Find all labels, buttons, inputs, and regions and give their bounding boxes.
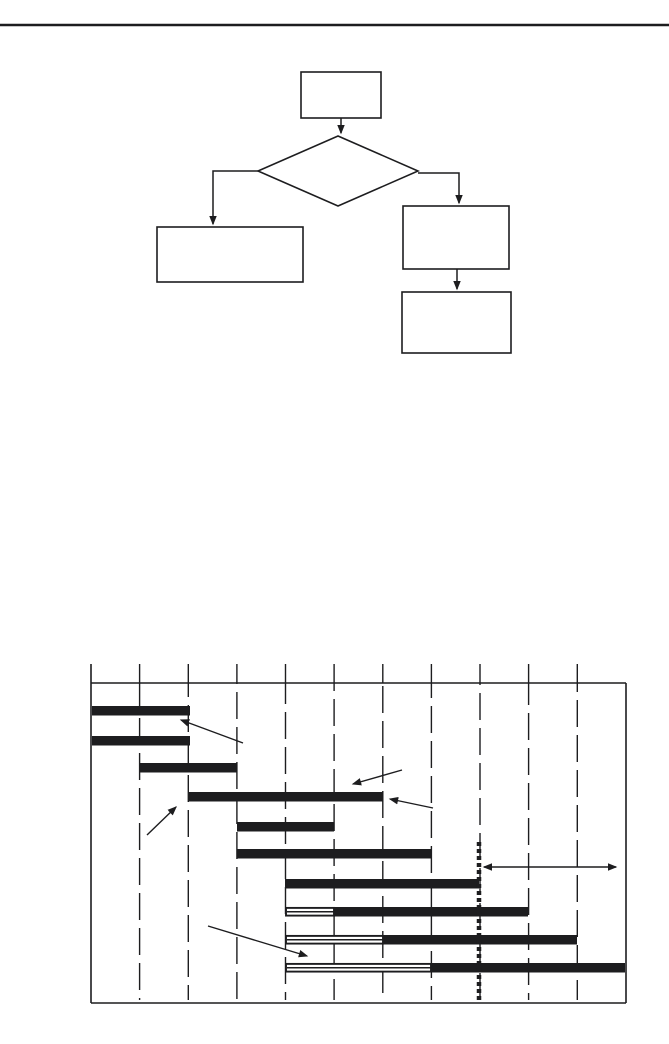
flowchart xyxy=(157,72,511,353)
gantt-bar-row-5 xyxy=(237,822,334,832)
gantt-bar-row-2 xyxy=(92,736,190,746)
flowchart-decision-diamond xyxy=(258,136,418,206)
connector-decision-to-right-box xyxy=(418,173,459,203)
gantt-bar-row-8 xyxy=(334,907,528,917)
gantt-bar-row-6 xyxy=(237,849,431,859)
annotation-arrow-long-bar-end xyxy=(390,799,433,808)
flowchart-left-result-box xyxy=(157,227,303,282)
gantt-bar-row-7 xyxy=(285,879,479,889)
gantt-bar-row-3 xyxy=(140,763,237,773)
annotation-arrow-long-bar-top xyxy=(353,770,402,784)
flowchart-right-final-box xyxy=(402,292,511,353)
annotation-arrow-long-bar-start xyxy=(147,807,176,835)
gantt-chart xyxy=(91,664,626,1003)
flowchart-right-process-box xyxy=(403,206,509,269)
flowchart-start-box xyxy=(301,72,381,118)
connector-decision-to-left-box xyxy=(213,171,258,224)
gantt-bar-row-1 xyxy=(92,706,190,716)
gantt-bar-row-10 xyxy=(431,963,625,973)
figure-canvas xyxy=(0,0,669,1044)
annotation-arrow-top-bars xyxy=(181,720,243,743)
gantt-bar-row-4 xyxy=(188,792,383,802)
document-page xyxy=(0,0,669,1044)
